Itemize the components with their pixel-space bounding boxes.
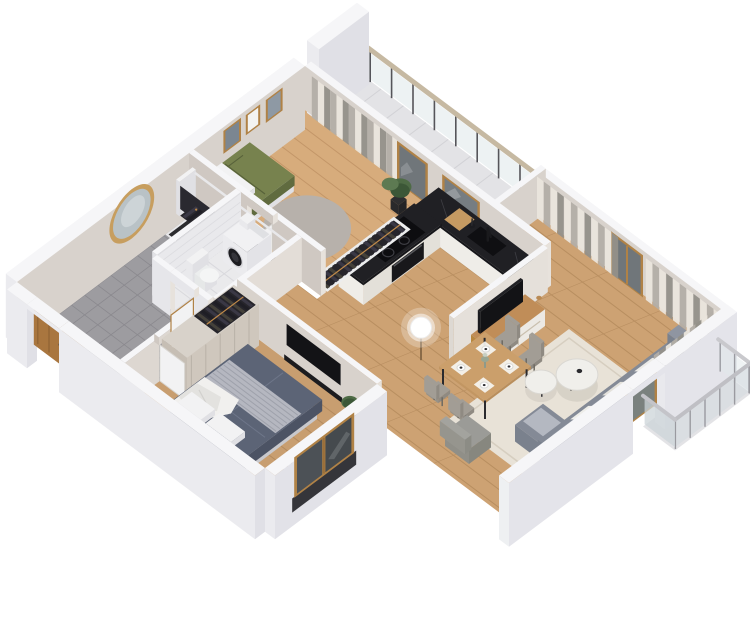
isometric-apartment-render — [0, 0, 750, 621]
sw-facade-hall — [7, 282, 37, 368]
floor-plan-stage — [0, 0, 750, 621]
tv-decor — [536, 296, 542, 300]
